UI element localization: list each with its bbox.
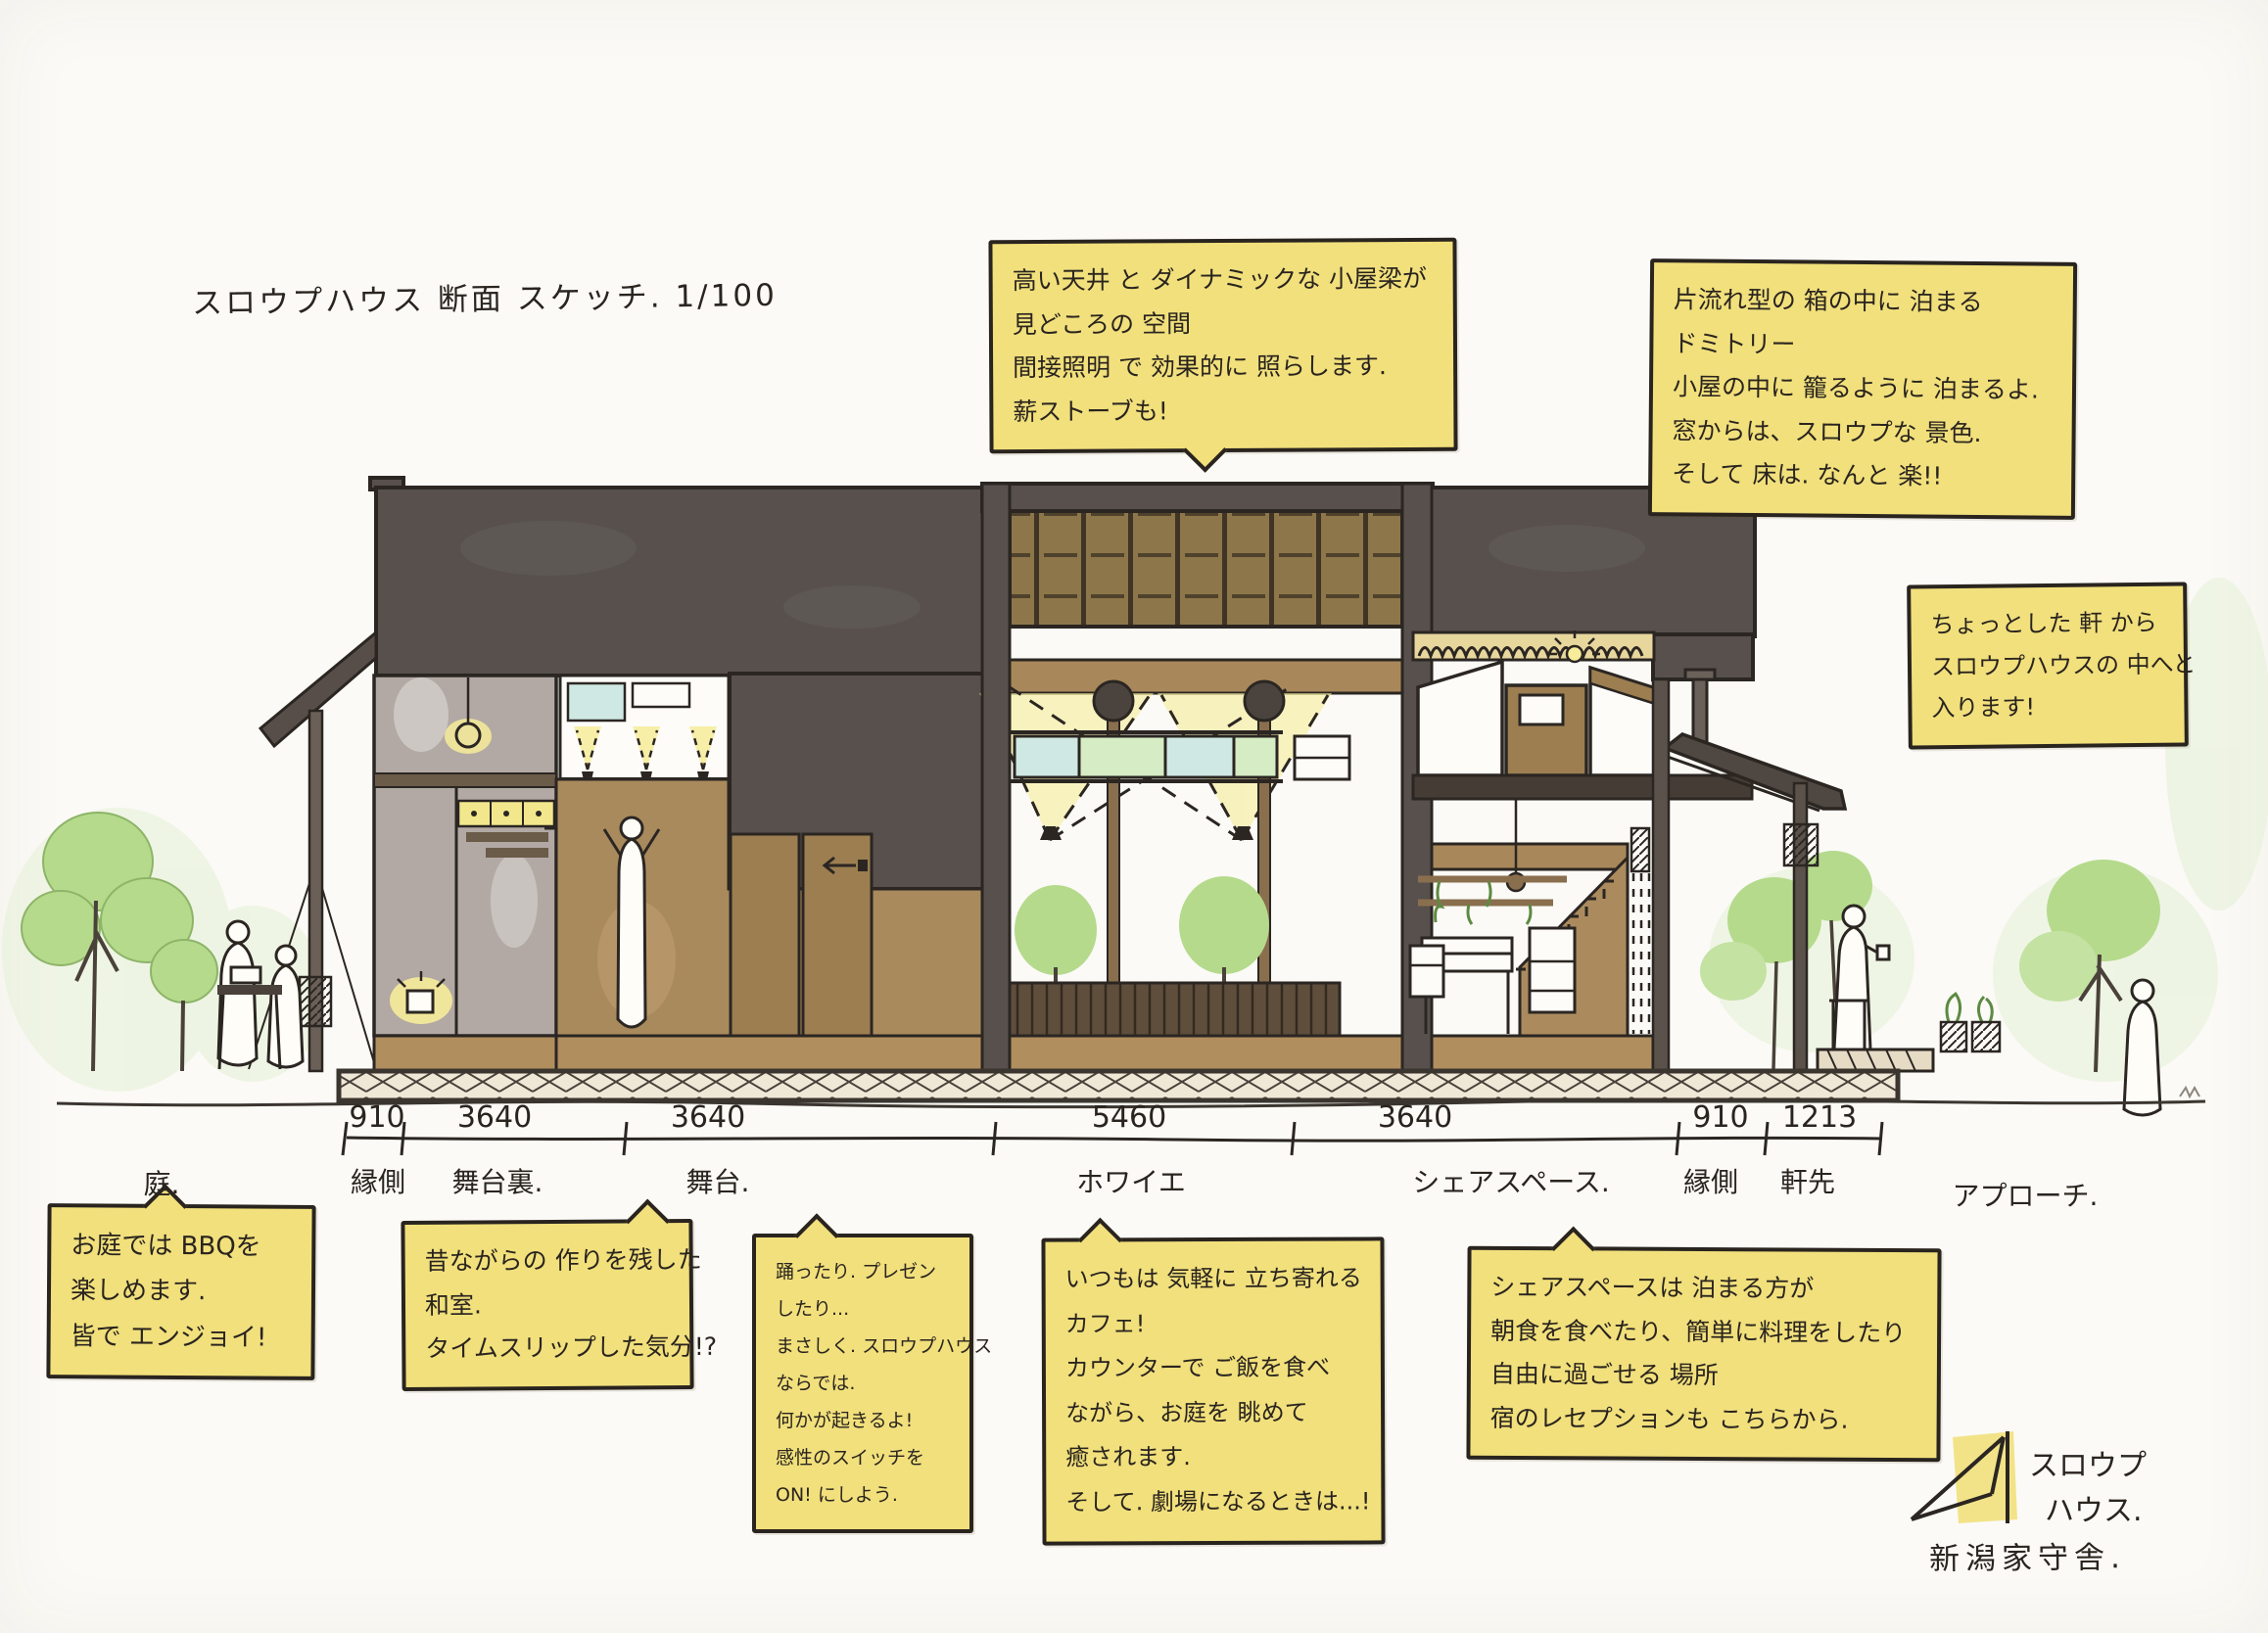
note-line: ながら、お庭を 眺めて	[1065, 1390, 1361, 1436]
foyer-floor	[985, 1036, 1432, 1071]
note-washitsu: 昔ながらの 作りを残した 和室. タイムスリップした気分!?	[401, 1219, 693, 1391]
note-line: ならでは.	[776, 1365, 950, 1402]
note-line: 小屋の中に 籠るように 泊まるよ.	[1673, 365, 2053, 412]
note-line: 朝食を食べたり、簡単に料理をしたり	[1490, 1309, 1917, 1355]
wood-slat-ceiling	[1010, 511, 1402, 627]
note-line: 窓からは、スロウプな 景色.	[1672, 409, 2052, 456]
section-post	[982, 484, 1010, 1071]
note-line: 自由に過ごせる 場所	[1490, 1353, 1917, 1399]
share-beam	[1432, 844, 1628, 869]
sketch-title: スロウプハウス 断面 スケッチ. 1/100	[192, 270, 778, 322]
note-line: スロウプハウスの 中へと	[1931, 643, 2164, 687]
note-line: 何かが起きるよ!	[776, 1402, 950, 1439]
note-ceiling: 高い天井 と ダイナミックな 小屋梁が 見どころの 空間 間接照明 で 効果的に…	[988, 238, 1457, 453]
note-line: 感性のスイッチを	[776, 1439, 950, 1476]
stage-front-railing	[985, 983, 1340, 1036]
note-entrance: ちょっとした 軒 から スロウプハウスの 中へと 入ります!	[1907, 583, 2189, 750]
logo-name-line2: ハウス.	[2045, 1486, 2143, 1529]
site-label-approach: アプローチ.	[1953, 1175, 2099, 1214]
note-line: 癒されます.	[1065, 1435, 1361, 1481]
deck	[339, 1071, 1898, 1100]
wood-stove	[390, 971, 452, 1024]
window-band	[1015, 736, 1277, 777]
note-line: 高い天井 と ダイナミックな 小屋梁が	[1013, 257, 1434, 303]
potted-plants	[1941, 993, 2000, 1051]
foyer	[979, 484, 1432, 1071]
note-line: 片流れ型の 箱の中に 泊まる	[1674, 278, 2054, 325]
note-line: そして 床は. なんと 楽!!	[1672, 452, 2052, 499]
ladder-frame	[1530, 928, 1575, 1012]
note-line: 入ります!	[1931, 685, 2164, 729]
note-stage: 踊ったり. プレゼン したり... まさしく. スロウプハウス ならでは. 何か…	[752, 1234, 973, 1533]
note-line: シェアスペースは 泊まる方が	[1490, 1266, 1917, 1312]
backstage-floor	[374, 1036, 556, 1071]
note-line: まさしく. スロウプハウス	[776, 1328, 950, 1365]
logo-company: 新潟家守舎.	[1929, 1532, 2126, 1578]
stage-floor	[556, 1036, 985, 1071]
sketch-page: スロウプハウス 断面 スケッチ. 1/100 高い天井 と ダイナミックな 小屋…	[0, 0, 2268, 1633]
backstage-room	[374, 676, 572, 1071]
note-line: 楽しめます.	[71, 1268, 292, 1315]
note-dormitory: 片流れ型の 箱の中に 泊まる ドミトリー 小屋の中に 籠るように 泊まるよ. 窓…	[1648, 258, 2077, 519]
note-line: タイムスリップした気分!?	[425, 1326, 670, 1371]
note-line: カフェ!	[1065, 1301, 1361, 1347]
note-line: 和室.	[425, 1283, 670, 1328]
dimension-value: 910	[349, 1100, 404, 1135]
note-share: シェアスペースは 泊まる方が 朝食を食べたり、簡単に料理をしたり 自由に過ごせる…	[1466, 1246, 1941, 1463]
room-label-engawa-left: 縁側	[351, 1161, 405, 1200]
note-line: 踊ったり. プレゼン	[776, 1253, 950, 1290]
note-line: 見どころの 空間	[1013, 301, 1434, 347]
note-line: 昔ながらの 作りを残した	[425, 1238, 670, 1283]
note-line: カウンターで ご飯を食べ	[1065, 1346, 1361, 1392]
room-label-stage: 舞台.	[686, 1161, 750, 1200]
note-line: いつもは 気軽に 立ち寄れる	[1065, 1256, 1361, 1302]
note-line: 薪ストーブも!	[1013, 388, 1434, 434]
foyer-beam	[1010, 660, 1402, 693]
dimension-value: 5460	[1092, 1100, 1166, 1135]
room-label-engawa-right: 縁側	[1683, 1161, 1738, 1200]
room-label-eaves: 軒先	[1780, 1161, 1835, 1200]
note-line: ON! にしよう.	[776, 1476, 950, 1514]
note-line: 宿のレセプションも こちらから.	[1490, 1396, 1917, 1442]
site-label-garden: 庭.	[144, 1163, 180, 1202]
dressing-mirror-lights	[458, 801, 554, 826]
note-line: 皆で エンジョイ!	[71, 1314, 292, 1361]
share-floor	[1432, 1036, 1653, 1071]
loft-floor-slab	[1413, 775, 1752, 799]
note-garden: お庭では BBQを 楽しめます. 皆で エンジョイ!	[46, 1203, 315, 1380]
room-label-foyer: ホワイエ	[1076, 1161, 1186, 1200]
dimension-value: 910	[1692, 1100, 1748, 1135]
note-line: したり...	[776, 1290, 950, 1328]
logo-name-line1: スロウプ	[2029, 1441, 2147, 1484]
dimension-value: 3640	[457, 1100, 532, 1135]
note-line: ちょっとした 軒 から	[1930, 602, 2163, 646]
dimension-value: 3640	[1378, 1100, 1452, 1135]
note-line: そして. 劇場になるときは...!	[1065, 1479, 1361, 1525]
note-line: 間接照明 で 効果的に 照らします.	[1013, 345, 1434, 391]
stage-door	[731, 834, 799, 1036]
section-post	[1653, 679, 1669, 1071]
ground-scribble	[2180, 1088, 2199, 1096]
note-line: ドミトリー	[1673, 322, 2053, 369]
note-cafe: いつもは 気軽に 立ち寄れる カフェ! カウンターで ご飯を食べ ながら、お庭を…	[1041, 1236, 1385, 1545]
room-label-backstage: 舞台裏.	[452, 1161, 543, 1200]
stage-upper-gallery	[560, 676, 729, 780]
dimension-value: 1213	[1782, 1100, 1857, 1135]
note-line: お庭では BBQを	[71, 1223, 292, 1270]
room-label-sharespace: シェアスペース.	[1412, 1161, 1610, 1200]
dimension-value: 3640	[671, 1100, 745, 1135]
